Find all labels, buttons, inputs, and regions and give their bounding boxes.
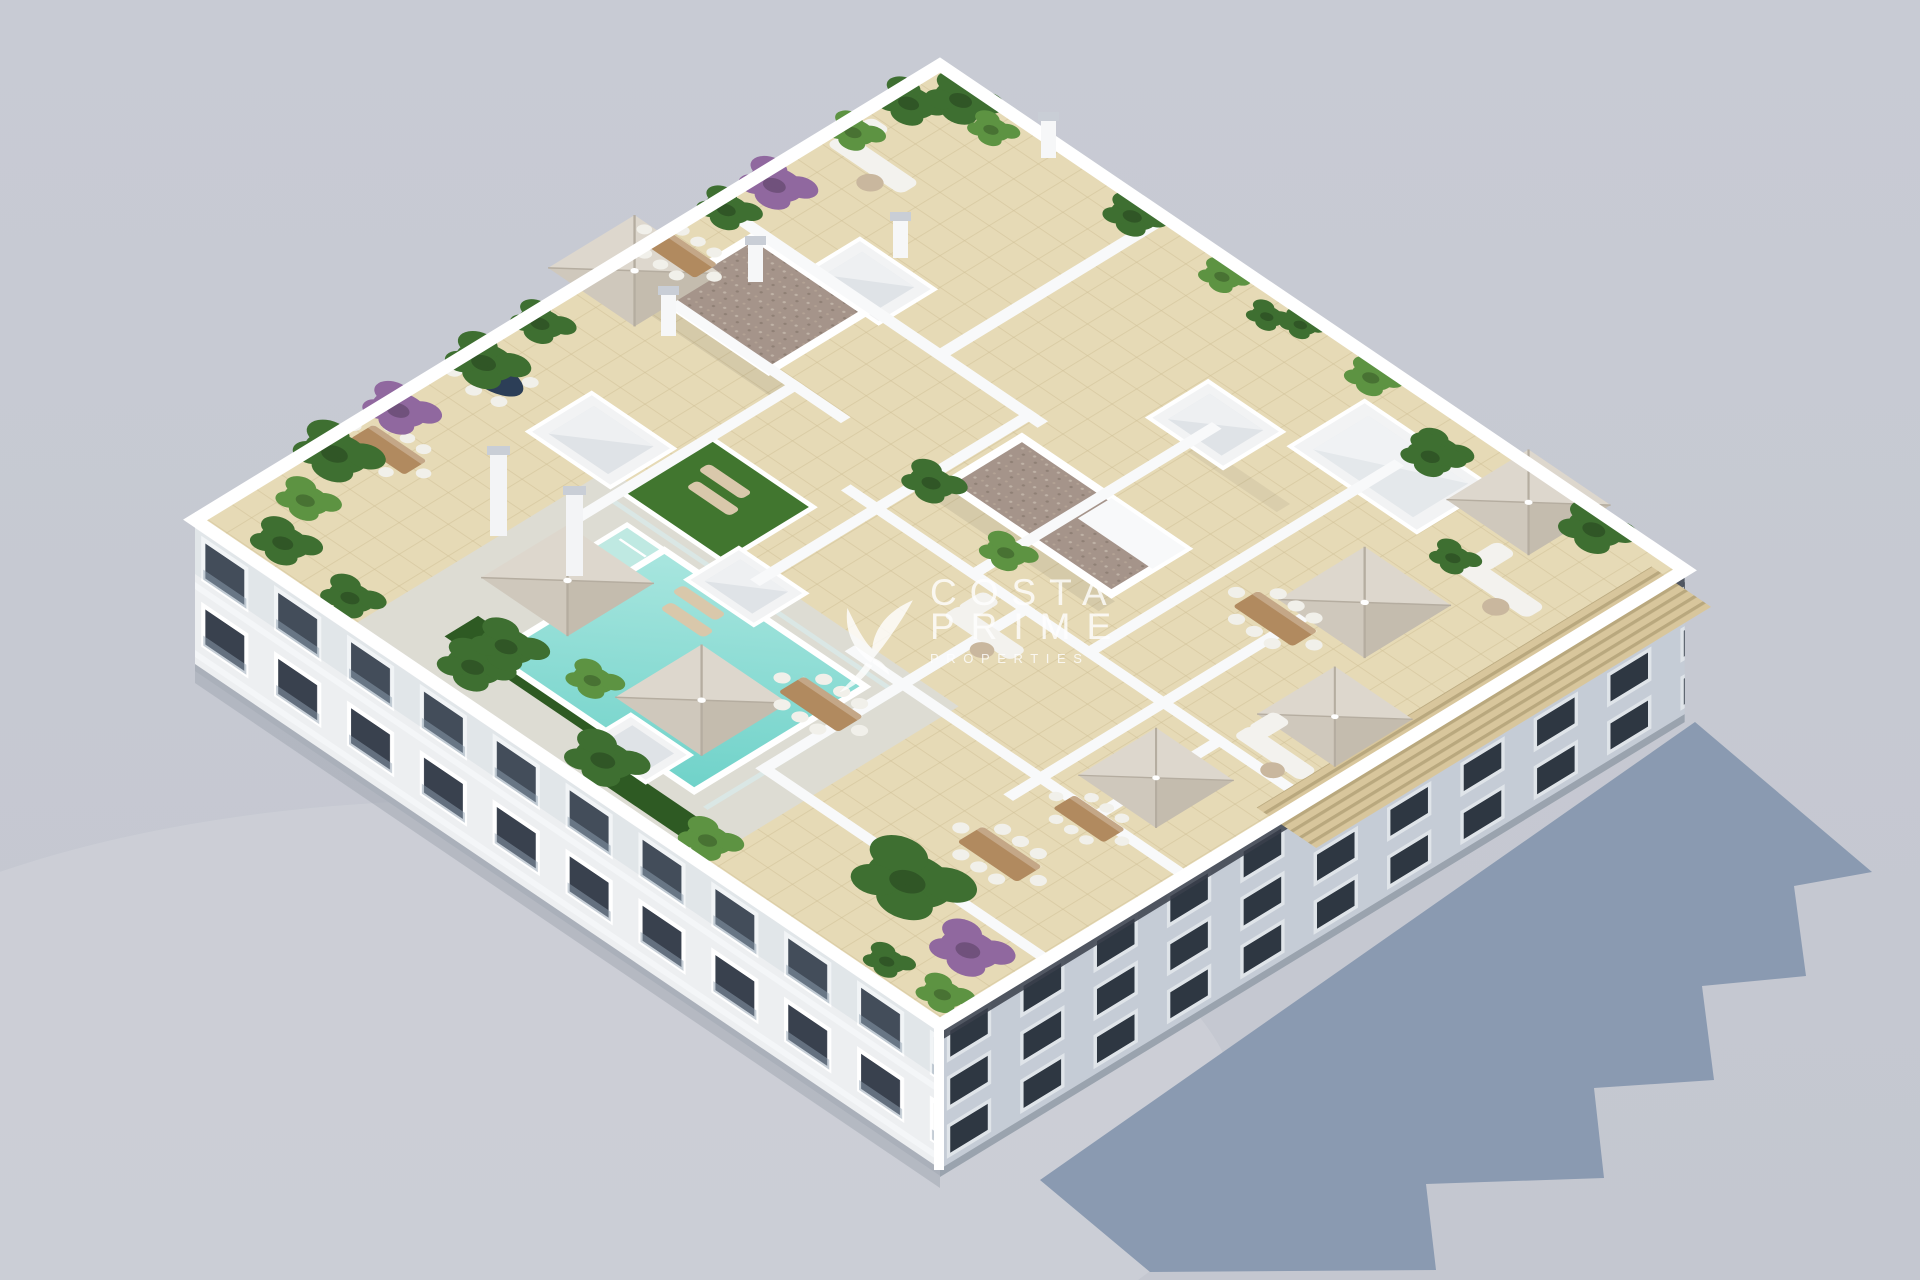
corner-pillar [934, 1018, 944, 1170]
render-stage: COSTA PRIME PROPERTIES [0, 0, 1920, 1280]
building-render [0, 0, 1920, 1280]
